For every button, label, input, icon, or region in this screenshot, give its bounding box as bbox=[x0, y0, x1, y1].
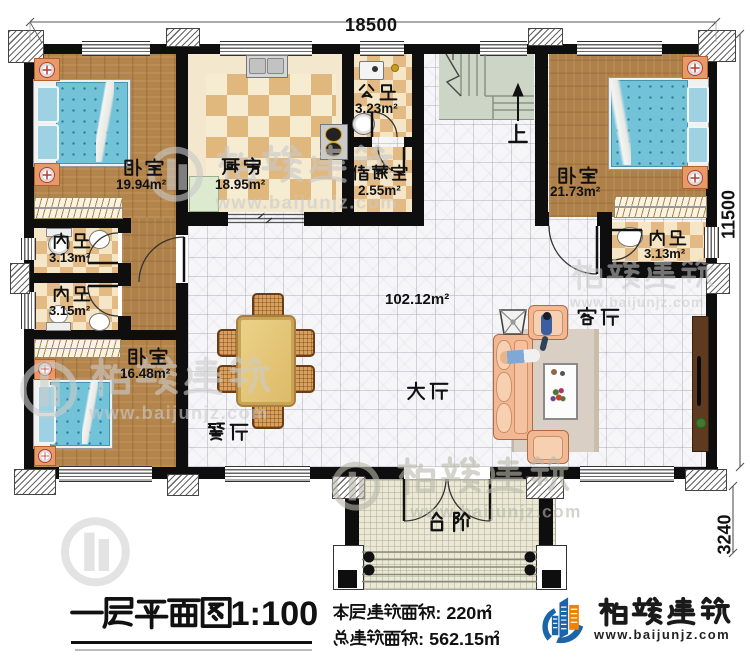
svg-text:2: 2 bbox=[486, 603, 492, 615]
svg-text:: 562.15m: : 562.15m bbox=[418, 629, 500, 649]
svg-text:www.baijunjz.com: www.baijunjz.com bbox=[88, 403, 268, 423]
svg-text:2: 2 bbox=[494, 629, 500, 641]
svg-text:1:100: 1:100 bbox=[230, 595, 318, 633]
svg-text:: 220m: : 220m bbox=[435, 603, 492, 623]
